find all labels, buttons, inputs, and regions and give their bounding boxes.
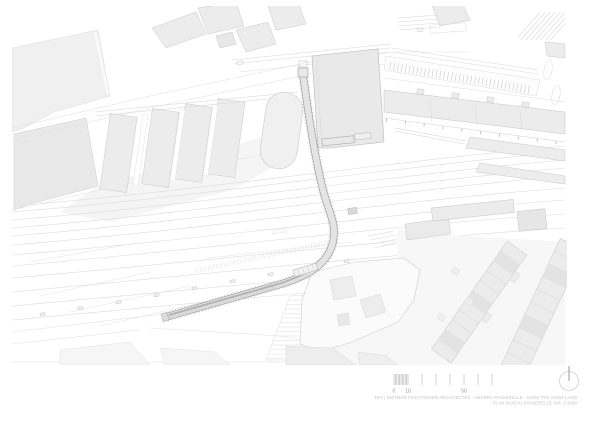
- oval-traffic-island: [258, 90, 305, 171]
- signal-box: [348, 207, 358, 214]
- station-strip-building: [384, 90, 565, 134]
- road-marking: [237, 61, 243, 65]
- annotations: 0 10 50 DFA | DIETMAR FEICHTINGER ARCHIT…: [375, 366, 579, 406]
- top-right-hatch-block: [514, 10, 577, 42]
- caption-line1: DFA | DIETMAR FEICHTINGER ARCHITECTES - …: [375, 395, 577, 400]
- station-main-building: [312, 49, 384, 148]
- top-center-hatch-rows: [398, 15, 440, 30]
- bridge-north-landing: [298, 68, 308, 77]
- top-right-parking: [384, 10, 577, 106]
- scale-bar: [394, 374, 492, 385]
- scale-label-0: 0: [393, 389, 396, 395]
- caption-block: DFA | DIETMAR FEICHTINGER ARCHITECTES - …: [375, 395, 578, 406]
- slab-building: [517, 209, 547, 232]
- caption-line2: PLAN NIVEAU PASSERELLE éch. 1/1000: [493, 401, 577, 406]
- slab-building: [431, 199, 514, 221]
- plan-sheet: 0 10 50 DFA | DIETMAR FEICHTINGER ARCHIT…: [0, 0, 600, 424]
- site-plan-drawing: 0 10 50 DFA | DIETMAR FEICHTINGER ARCHIT…: [0, 0, 600, 424]
- top-building-cluster: [152, 2, 565, 58]
- plan-area: [12, 2, 584, 376]
- north-indicator-icon: [560, 366, 579, 391]
- scale-label-50: 50: [461, 389, 467, 395]
- scale-label-10: 10: [405, 389, 411, 395]
